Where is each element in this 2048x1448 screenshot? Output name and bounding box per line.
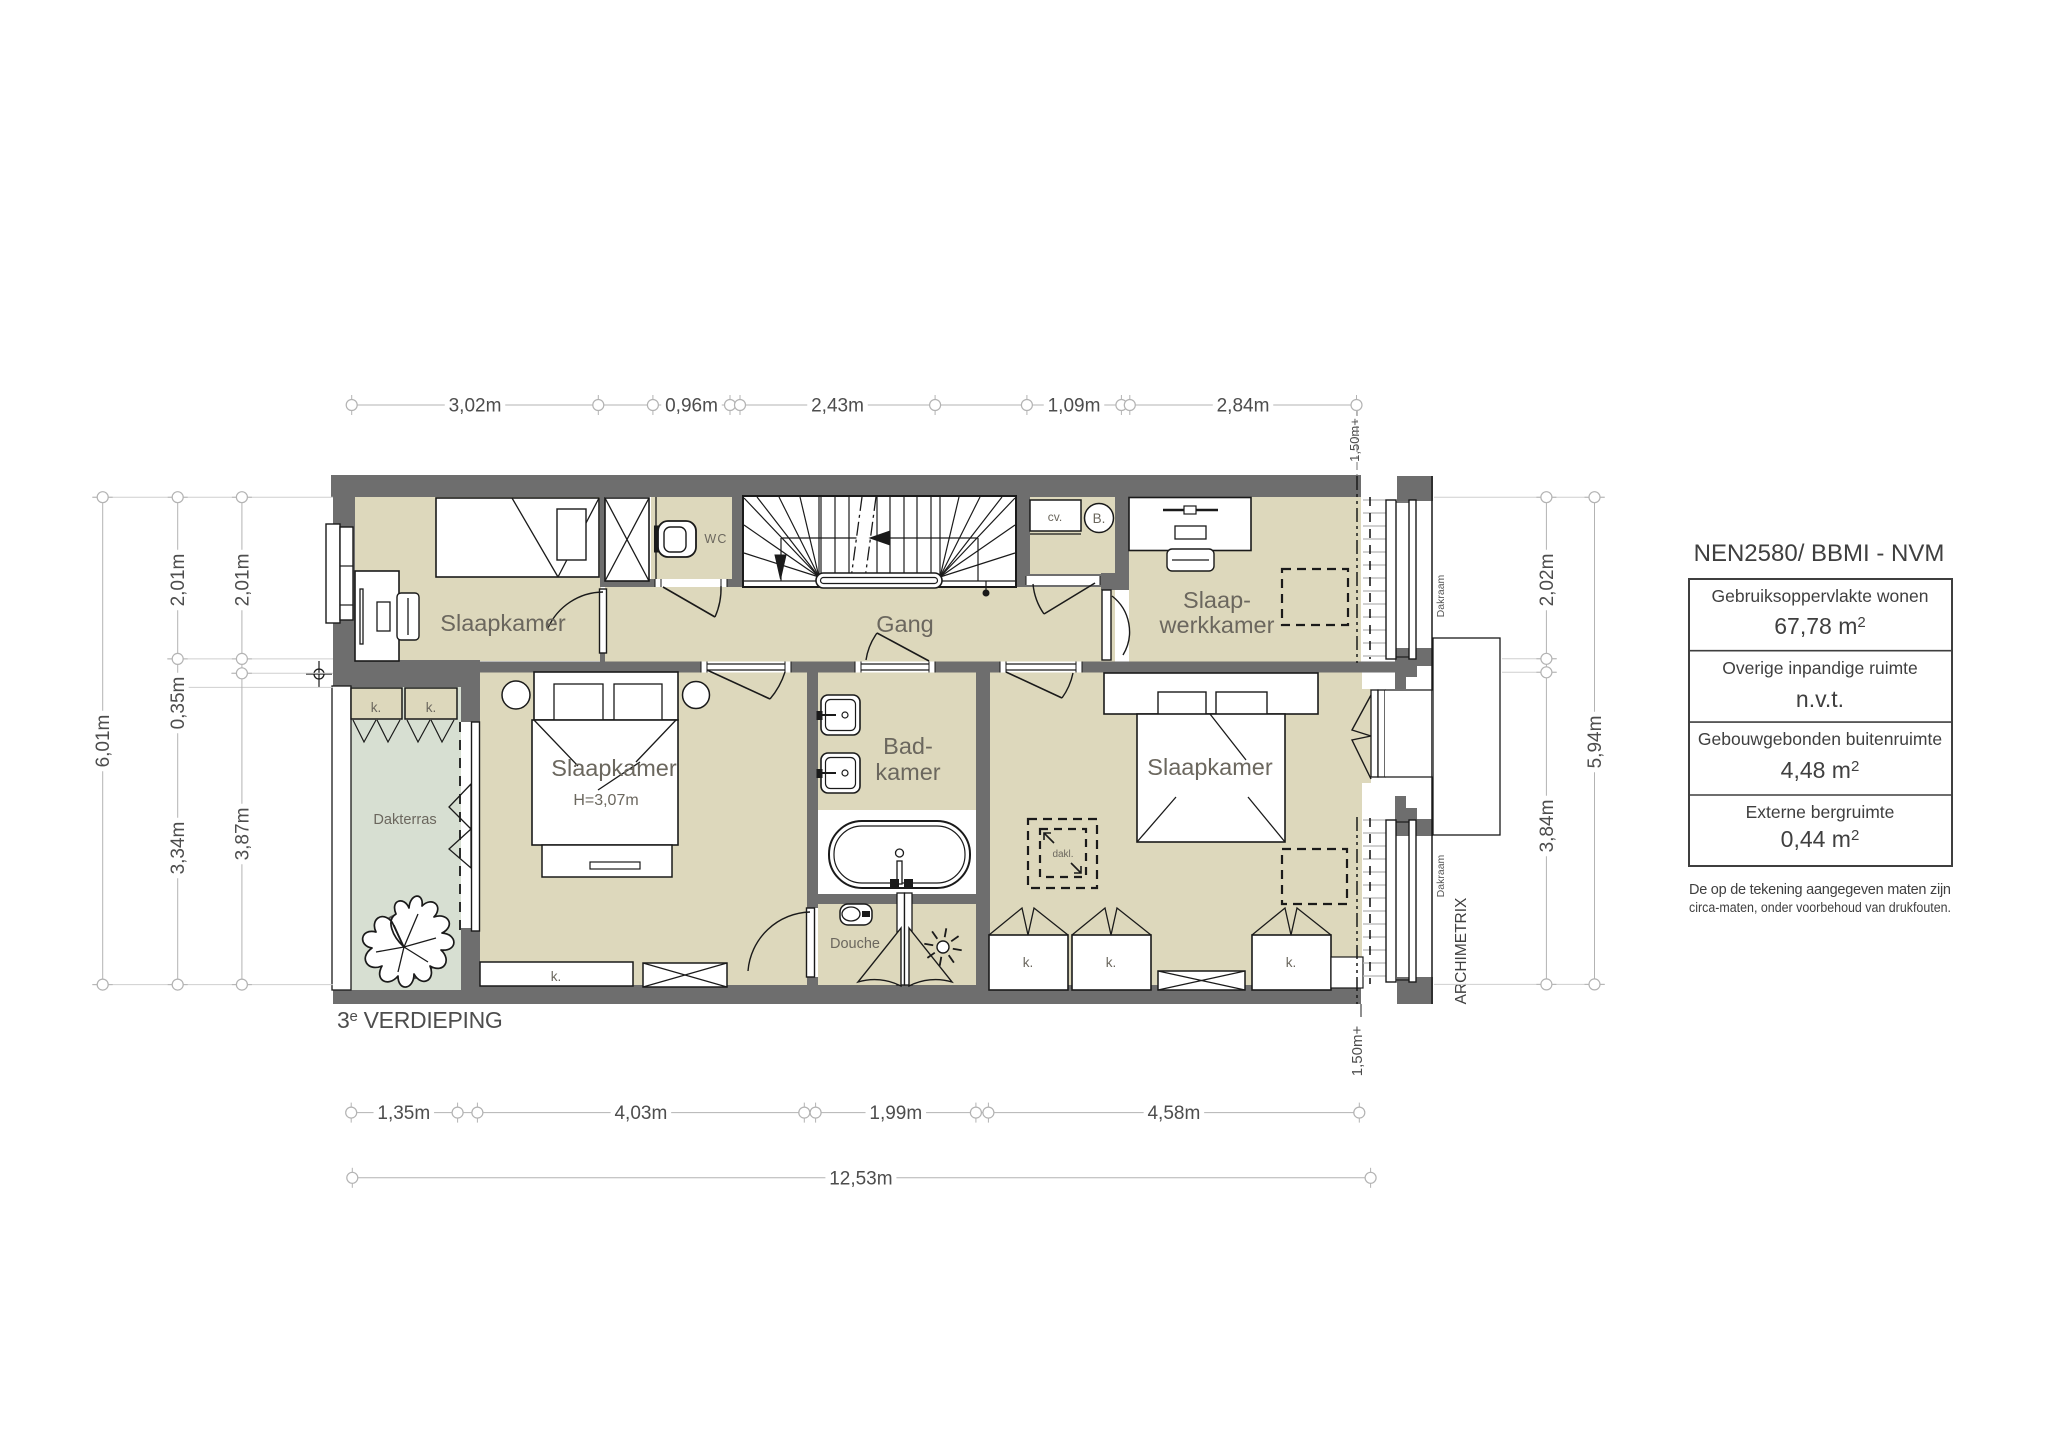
svg-text:H=3,07m: H=3,07m: [573, 792, 638, 809]
svg-text:Gang: Gang: [876, 611, 934, 637]
svg-text:1,99m: 1,99m: [869, 1103, 922, 1124]
svg-text:0,35m: 0,35m: [168, 677, 189, 730]
svg-text:Dakterras: Dakterras: [373, 812, 436, 828]
svg-text:Slaapkamer: Slaapkamer: [551, 755, 677, 781]
svg-text:3,87m: 3,87m: [232, 808, 253, 861]
svg-text:k.: k.: [1023, 955, 1034, 970]
svg-text:Dakraam: Dakraam: [1435, 574, 1447, 617]
svg-text:2,43m: 2,43m: [811, 396, 864, 417]
svg-text:12,53m: 12,53m: [829, 1168, 892, 1189]
svg-text:Gebouwgebonden buitenruimte: Gebouwgebonden buitenruimte: [1698, 729, 1942, 749]
svg-text:4,03m: 4,03m: [614, 1103, 667, 1124]
svg-text:2,01m: 2,01m: [232, 554, 253, 607]
svg-text:2,01m: 2,01m: [168, 554, 189, 607]
svg-text:1,50m+: 1,50m+: [1347, 418, 1362, 462]
svg-text:4,48 m2: 4,48 m2: [1781, 757, 1860, 783]
svg-text:k.: k.: [1286, 955, 1297, 970]
svg-text:Slaap-: Slaap-: [1183, 587, 1251, 613]
svg-text:Gebruiksoppervlakte wonen: Gebruiksoppervlakte wonen: [1712, 586, 1929, 606]
svg-text:NEN2580/ BBMI - NVM: NEN2580/ BBMI - NVM: [1694, 540, 1945, 567]
svg-text:3e VERDIEPING: 3e VERDIEPING: [337, 1007, 503, 1033]
svg-text:cv.: cv.: [1048, 510, 1062, 524]
svg-text:Slaapkamer: Slaapkamer: [1147, 754, 1273, 780]
svg-text:Bad-: Bad-: [883, 733, 933, 759]
svg-text:Externe bergruimte: Externe bergruimte: [1746, 802, 1895, 822]
svg-text:De op de tekening aangegeven m: De op de tekening aangegeven maten zijn: [1689, 882, 1951, 898]
svg-text:WC: WC: [704, 532, 727, 546]
svg-text:67,78 m2: 67,78 m2: [1774, 613, 1865, 639]
svg-text:3,84m: 3,84m: [1537, 800, 1558, 853]
svg-text:3,02m: 3,02m: [449, 396, 502, 417]
svg-text:3,34m: 3,34m: [168, 822, 189, 875]
svg-text:k.: k.: [1106, 955, 1117, 970]
svg-text:kamer: kamer: [875, 759, 940, 785]
svg-text:0,44 m2: 0,44 m2: [1781, 826, 1860, 852]
svg-text:circa-maten, onder voorbehoud: circa-maten, onder voorbehoud van drukfo…: [1689, 900, 1951, 916]
svg-text:Slaapkamer: Slaapkamer: [440, 610, 566, 636]
svg-text:n.v.t.: n.v.t.: [1796, 686, 1844, 712]
svg-text:Dakraam: Dakraam: [1435, 854, 1447, 897]
svg-text:k.: k.: [551, 969, 562, 984]
svg-text:Douche: Douche: [830, 936, 880, 952]
svg-text:ARCHIMETRIX: ARCHIMETRIX: [1453, 897, 1470, 1004]
svg-text:dakl.: dakl.: [1052, 849, 1073, 860]
svg-text:werkkamer: werkkamer: [1159, 612, 1275, 638]
svg-text:0,96m: 0,96m: [665, 396, 718, 417]
svg-text:k.: k.: [426, 700, 437, 715]
svg-text:Overige inpandige ruimte: Overige inpandige ruimte: [1722, 658, 1918, 678]
svg-text:2,02m: 2,02m: [1537, 554, 1558, 607]
svg-text:1,35m: 1,35m: [377, 1103, 430, 1124]
svg-text:k.: k.: [371, 700, 382, 715]
svg-text:1,50m+: 1,50m+: [1349, 1026, 1366, 1077]
svg-text:4,58m: 4,58m: [1147, 1103, 1200, 1124]
svg-text:1,09m: 1,09m: [1048, 396, 1101, 417]
svg-text:6,01m: 6,01m: [93, 715, 114, 768]
svg-text:B.: B.: [1093, 511, 1106, 526]
svg-text:5,94m: 5,94m: [1585, 716, 1606, 769]
svg-text:2,84m: 2,84m: [1217, 396, 1270, 417]
